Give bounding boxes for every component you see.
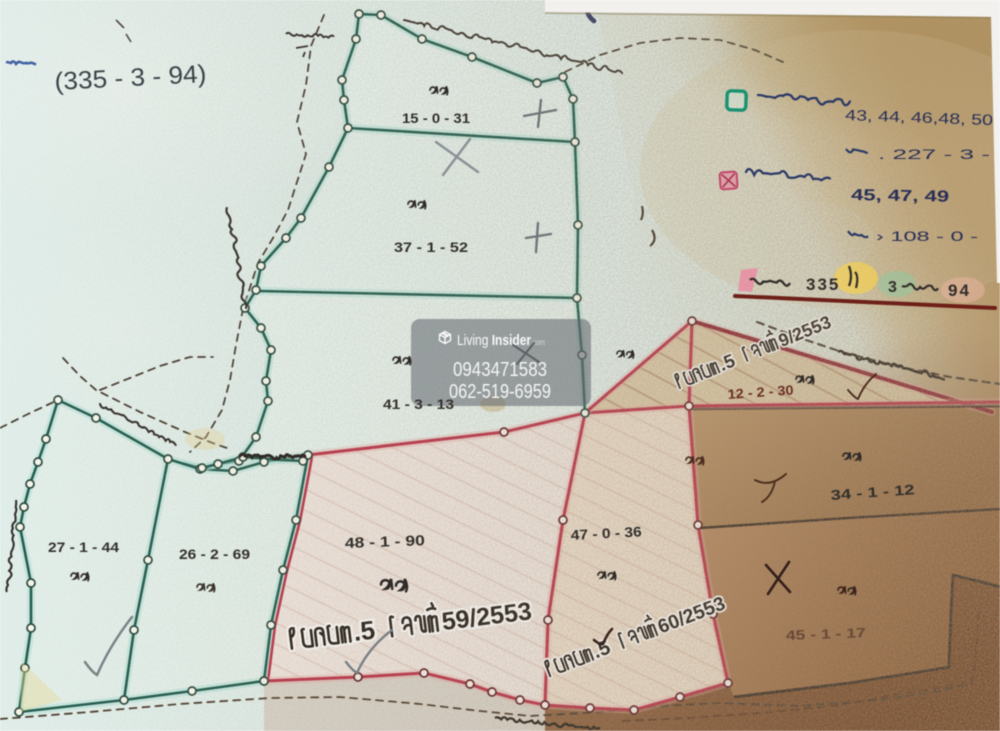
svg-text:15 - 0 - 31: 15 - 0 - 31 (402, 111, 471, 126)
svg-text:94: 94 (948, 281, 971, 300)
svg-text:3: 3 (888, 279, 897, 296)
svg-text:› 108 - 0 -: › 108 - 0 - (876, 228, 979, 244)
svg-text:45, 47, 49: 45, 47, 49 (851, 187, 949, 206)
svg-text:335: 335 (806, 275, 840, 294)
svg-text:0943471583: 0943471583 (453, 359, 547, 381)
svg-text:37 - 1 - 52: 37 - 1 - 52 (394, 239, 468, 255)
svg-text:. 227 - 3 -: . 227 - 3 - (878, 146, 991, 162)
svg-text:41 - 3 - 13: 41 - 3 - 13 (383, 397, 455, 412)
svg-text:48 - 1 - 90: 48 - 1 - 90 (345, 533, 426, 552)
svg-text:27 - 1 - 44: 27 - 1 - 44 (48, 540, 120, 555)
svg-text:45 - 1 - 17: 45 - 1 - 17 (786, 625, 866, 643)
svg-text:062-519-6959: 062-519-6959 (449, 381, 551, 403)
svg-text:26 - 2 - 69: 26 - 2 - 69 (179, 547, 250, 562)
